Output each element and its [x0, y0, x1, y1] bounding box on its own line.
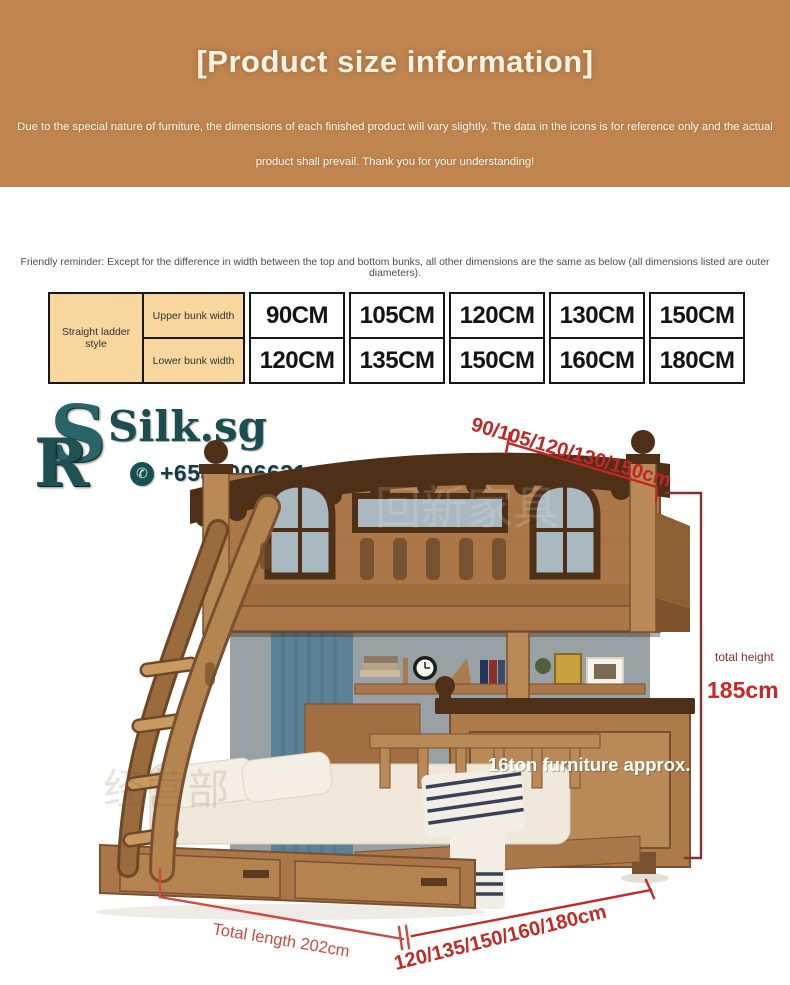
friendly-reminder: Friendly reminder: Except for the differ… [0, 257, 790, 279]
product-size-page: [Product size information] Due to the sp… [0, 0, 790, 985]
lower-size-2: 135CM [351, 337, 443, 382]
disclaimer-line-1: Due to the special nature of furniture, … [0, 121, 790, 133]
lower-size-4: 160CM [551, 337, 643, 382]
drawer-2-handle [421, 878, 447, 886]
disclaimer-line-2: product shall prevail. Thank you for you… [0, 156, 790, 168]
lower-bunk-label: Lower bunk width [144, 337, 243, 382]
left-post-cap [199, 464, 233, 474]
size-column-5: 150CM 180CM [649, 292, 745, 384]
lower-size-3: 150CM [451, 337, 543, 382]
lower-size-5: 180CM [651, 337, 743, 382]
upper-guard-rail [205, 584, 660, 606]
size-table: Straight ladder style Upper bunk width L… [48, 292, 745, 384]
size-column-1: 90CM 120CM [249, 292, 345, 384]
bunk-labels: Upper bunk width Lower bunk width [144, 294, 243, 382]
upper-size-4: 130CM [551, 294, 643, 337]
right-side-panel [656, 512, 690, 608]
upper-deck [205, 606, 660, 632]
upper-size-5: 150CM [651, 294, 743, 337]
lower-size-1: 120CM [251, 337, 343, 382]
upper-size-2: 105CM [351, 294, 443, 337]
right-finial [631, 430, 655, 454]
plant [535, 658, 551, 674]
floor-shadow [95, 904, 485, 920]
table-style-block: Straight ladder style Upper bunk width L… [48, 292, 245, 384]
right-post [630, 460, 656, 632]
style-label: Straight ladder style [50, 294, 144, 382]
headboard-finial [435, 676, 455, 696]
upper-size-1: 90CM [251, 294, 343, 337]
headboard-cap [435, 698, 695, 714]
right-post-cap [626, 454, 660, 464]
shelf-board [355, 684, 645, 694]
drawer-1-handle [243, 870, 269, 878]
watermark-cn-1: 回新家具 [375, 482, 559, 534]
lower-guard-rail [370, 734, 600, 748]
height-value: 185cm [707, 677, 779, 703]
gold-frame [555, 654, 581, 684]
watermark-cn-2: 经营部 [103, 766, 229, 813]
page-title: [Product size information] [0, 44, 790, 80]
banner: [Product size information] Due to the sp… [0, 0, 790, 187]
size-column-2: 105CM 135CM [349, 292, 445, 384]
height-label: total height [715, 650, 774, 664]
left-finial [204, 440, 228, 464]
upper-bunk-label: Upper bunk width [144, 294, 243, 337]
size-column-4: 130CM 160CM [549, 292, 645, 384]
size-column-3: 120CM 150CM [449, 292, 545, 384]
bunk-bed-illustration: 回新家具 [55, 412, 715, 932]
upper-size-3: 120CM [451, 294, 543, 337]
deck-shadow [205, 630, 660, 637]
